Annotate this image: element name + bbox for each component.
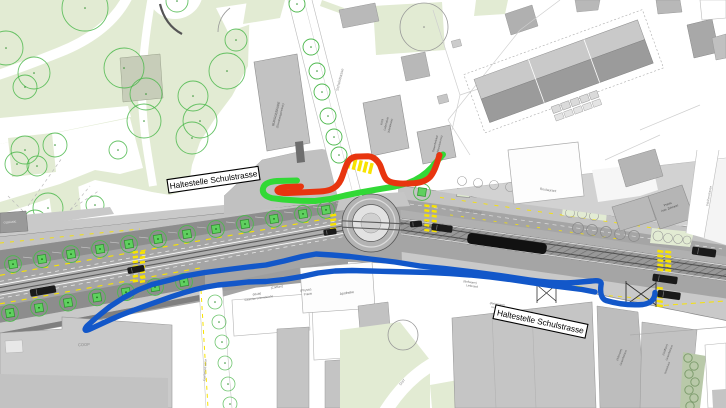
svg-text:COOP: COOP (78, 342, 90, 348)
